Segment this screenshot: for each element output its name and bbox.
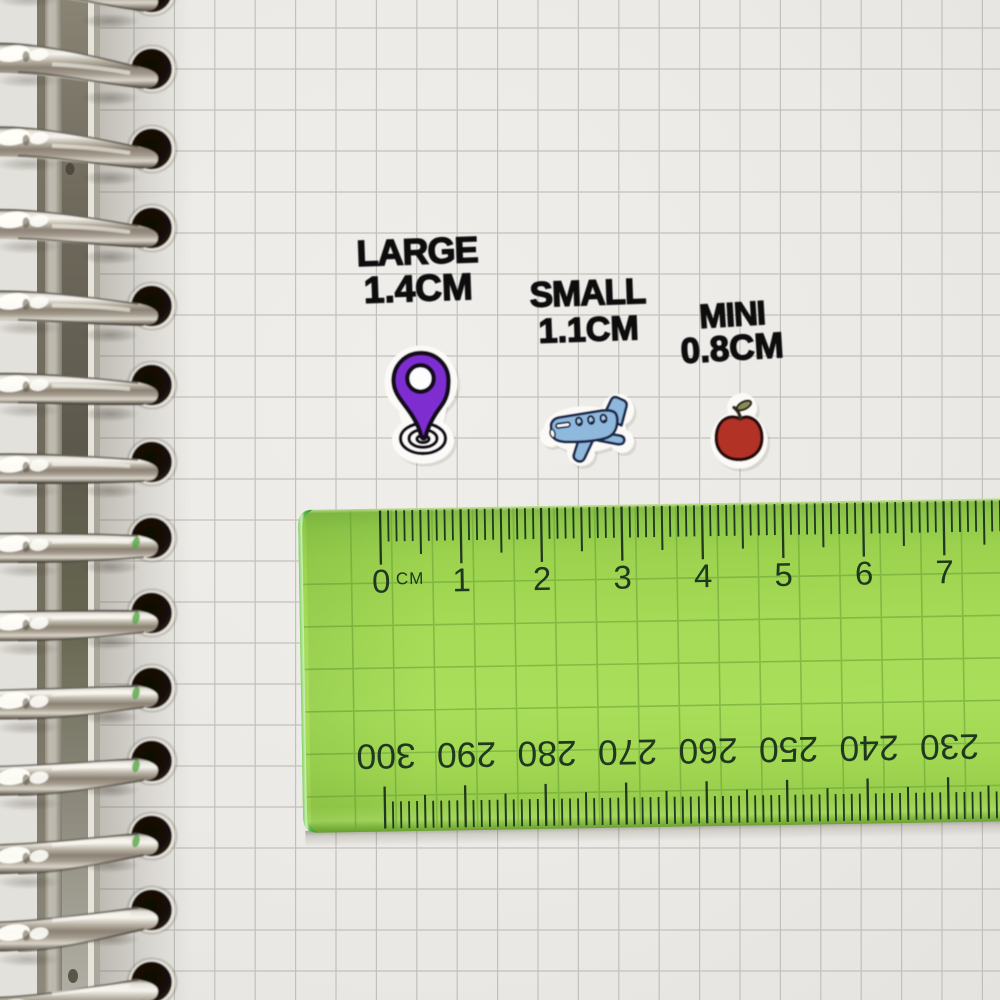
svg-text:250: 250 — [759, 729, 819, 770]
svg-text:1: 1 — [452, 561, 471, 598]
svg-text:260: 260 — [678, 730, 738, 771]
svg-text:1.4CM: 1.4CM — [363, 266, 473, 311]
svg-text:CM: CM — [396, 569, 425, 588]
svg-text:0: 0 — [372, 562, 391, 599]
svg-text:300: 300 — [356, 736, 416, 777]
svg-text:230: 230 — [920, 726, 980, 767]
svg-text:240: 240 — [839, 728, 899, 769]
svg-text:6: 6 — [855, 554, 874, 591]
svg-text:SMALL: SMALL — [529, 272, 646, 315]
svg-text:270: 270 — [598, 732, 658, 773]
svg-text:7: 7 — [935, 553, 954, 590]
svg-text:0.8CM: 0.8CM — [679, 326, 784, 371]
svg-text:5: 5 — [774, 556, 793, 593]
svg-text:290: 290 — [437, 734, 497, 775]
svg-text:280: 280 — [517, 733, 577, 774]
svg-text:2: 2 — [533, 560, 552, 597]
svg-text:1.1CM: 1.1CM — [538, 309, 639, 350]
svg-text:4: 4 — [694, 557, 713, 594]
svg-text:3: 3 — [613, 558, 632, 595]
